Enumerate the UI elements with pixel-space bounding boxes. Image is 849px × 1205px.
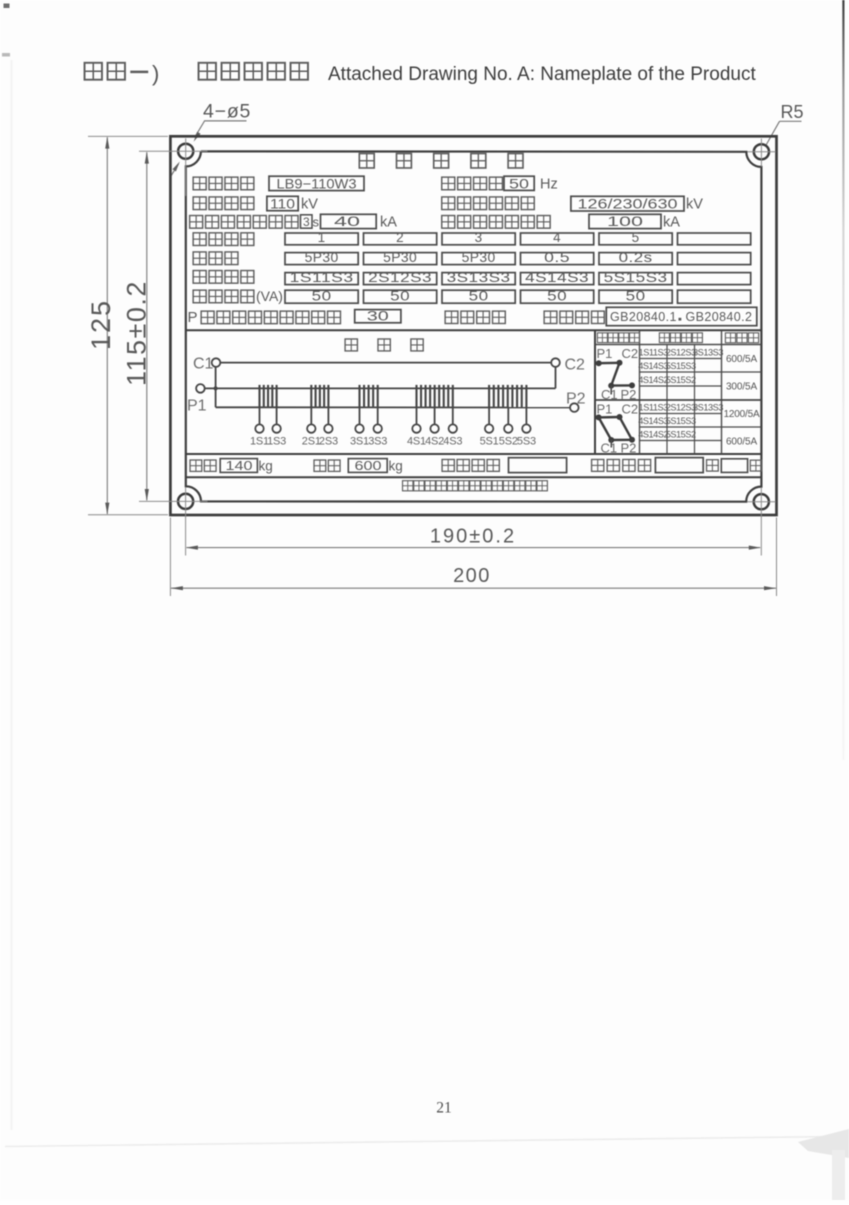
svg-text:P2: P2 [621,387,637,402]
svg-text:200: 200 [453,565,491,587]
svg-text:Attached Drawing No. A: Namepl: Attached Drawing No. A: Nameplate of the… [328,64,756,85]
svg-text:110: 110 [270,196,295,211]
svg-text:3: 3 [475,230,483,245]
svg-text:1S11S3: 1S11S3 [639,403,669,413]
svg-text:C2: C2 [622,346,639,361]
svg-text:1S11S3: 1S11S3 [639,348,669,358]
svg-text:5S3: 5S3 [517,436,536,448]
svg-text:3S13S3: 3S13S3 [447,269,511,285]
svg-text:30: 30 [367,309,389,324]
svg-text:Hz: Hz [540,177,558,193]
svg-text:4S2: 4S2 [425,436,444,448]
svg-text:300/5A: 300/5A [726,382,758,393]
svg-text:125: 125 [86,299,116,350]
svg-text:kg: kg [259,458,273,473]
svg-text:100: 100 [607,214,643,229]
svg-text:LB9−110W3: LB9−110W3 [277,176,357,192]
svg-text:50: 50 [547,288,567,303]
svg-text:(VA): (VA) [256,288,283,304]
svg-text:C2: C2 [622,402,639,417]
svg-text:5S15S3: 5S15S3 [604,269,668,285]
svg-text:4S14S2: 4S14S2 [638,430,668,440]
svg-text:21: 21 [436,1100,452,1117]
svg-text:0.5: 0.5 [544,249,570,265]
svg-text:P: P [188,309,198,326]
svg-text:C2: C2 [565,357,586,374]
svg-text:kV: kV [301,197,318,213]
svg-text:5P30: 5P30 [462,249,496,265]
svg-text:126/230/630: 126/230/630 [578,196,678,211]
svg-text:GB20840.1: GB20840.1 [610,310,677,324]
svg-text:50: 50 [312,288,332,303]
svg-text:C1: C1 [193,356,214,373]
svg-text:P2: P2 [566,391,586,408]
svg-text:0.2s: 0.2s [619,249,653,265]
svg-text:R5: R5 [781,102,804,122]
svg-text:4S14S2: 4S14S2 [638,375,668,385]
svg-text:50: 50 [469,288,489,303]
svg-text:2S12S3: 2S12S3 [368,269,432,285]
svg-text:5P30: 5P30 [383,249,417,265]
svg-text:140: 140 [226,458,253,473]
svg-text:600/5A: 600/5A [726,436,758,447]
svg-text:5P30: 5P30 [305,249,339,265]
svg-text:5S1: 5S1 [480,436,499,448]
svg-text:1200/5A: 1200/5A [724,409,760,420]
svg-text:3S1: 3S1 [350,436,369,448]
svg-text:5S15S2: 5S15S2 [666,375,696,385]
svg-text:2S3: 2S3 [319,436,338,448]
svg-text:GB20840.2: GB20840.2 [686,310,753,324]
svg-text:1S11S3: 1S11S3 [290,269,354,285]
svg-text:4: 4 [553,230,561,245]
svg-text:115±0.2: 115±0.2 [122,280,152,386]
svg-text:2S12S3: 2S12S3 [666,403,696,413]
svg-text:C1: C1 [601,440,618,455]
svg-text:5: 5 [632,230,640,245]
svg-text:): ) [152,61,159,86]
svg-text:5S15S3: 5S15S3 [666,361,696,371]
svg-text:P2: P2 [621,440,637,455]
svg-text:C1: C1 [601,387,618,402]
svg-text:600/5A: 600/5A [726,354,758,365]
svg-text:5S15S3: 5S15S3 [666,416,696,426]
svg-text:P1: P1 [597,402,613,417]
svg-text:50: 50 [509,176,529,191]
svg-text:kV: kV [686,197,703,213]
svg-text:4S14S3: 4S14S3 [525,269,589,285]
svg-text:2S12S3: 2S12S3 [666,348,696,358]
svg-text:1S3: 1S3 [267,436,286,448]
svg-text:4S14S3: 4S14S3 [638,416,668,426]
svg-text:3: 3 [303,215,310,229]
svg-text:50: 50 [626,288,646,303]
svg-text:s: s [313,215,320,230]
svg-text:5S15S2: 5S15S2 [666,430,696,440]
svg-text:kA: kA [663,215,680,231]
svg-text:4−ø5: 4−ø5 [203,101,251,123]
svg-text:1: 1 [318,230,326,245]
svg-text:3S13S3: 3S13S3 [693,403,723,413]
svg-text:3S13S3: 3S13S3 [693,348,723,358]
svg-text:4S1: 4S1 [407,436,426,448]
svg-text:600: 600 [355,458,382,473]
svg-text:3S3: 3S3 [368,436,387,448]
svg-text:40: 40 [334,214,360,229]
svg-text:4S14S3: 4S14S3 [638,361,668,371]
svg-text:P1: P1 [597,346,613,361]
svg-text:2: 2 [396,230,404,245]
svg-text:P1: P1 [187,398,207,415]
svg-text:190±0.2: 190±0.2 [430,526,516,548]
svg-text:kg: kg [389,458,403,473]
svg-text:50: 50 [390,288,410,303]
svg-text:4S3: 4S3 [443,436,462,448]
svg-text:kA: kA [380,215,397,231]
svg-text:5S2: 5S2 [499,436,518,448]
